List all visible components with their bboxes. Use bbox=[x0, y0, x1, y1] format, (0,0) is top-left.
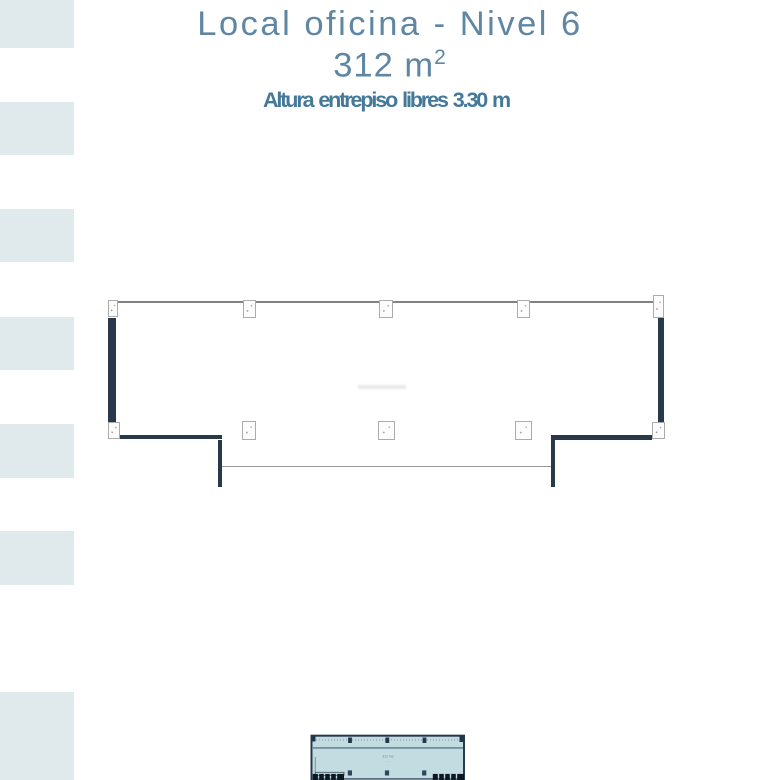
svg-text:.......: ....... bbox=[385, 760, 390, 763]
svg-text:312 m2: 312 m2 bbox=[382, 755, 393, 759]
